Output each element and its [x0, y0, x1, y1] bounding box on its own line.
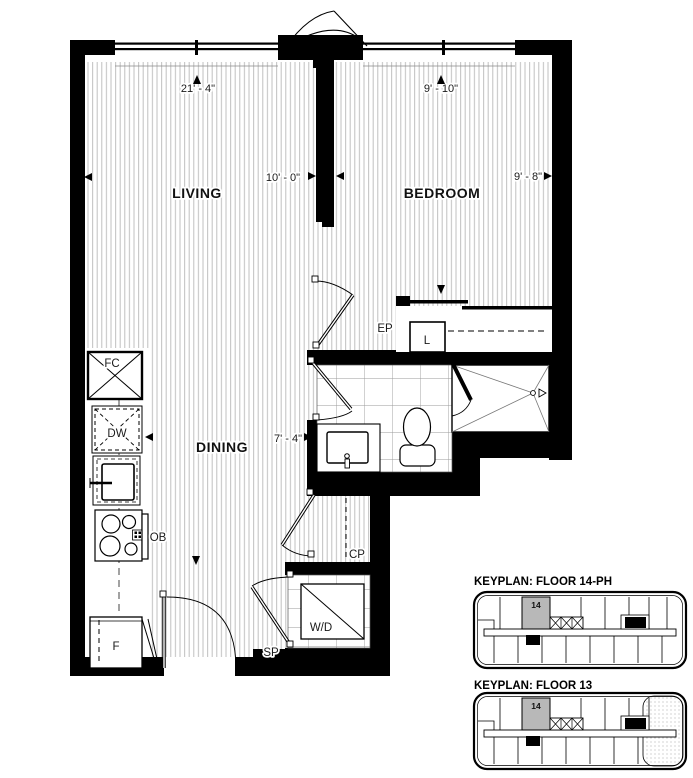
keyplan-13-title: KEYPLAN: FLOOR 13	[474, 680, 592, 692]
stair-block-left	[526, 736, 540, 746]
wall-divider	[316, 55, 334, 222]
wall-shower-right	[549, 350, 572, 460]
shower-pan	[452, 365, 549, 432]
wall-connector	[448, 458, 480, 496]
dining-label: DINING	[196, 439, 248, 455]
toilet-bowl	[404, 408, 431, 446]
cooktop	[95, 510, 148, 561]
stair-block-right	[625, 718, 646, 729]
dim-bedroom-width: 9' - 8"	[514, 171, 542, 183]
wall-right	[552, 40, 572, 352]
shower	[452, 362, 549, 432]
fridge-cabinet-label: FC	[104, 358, 119, 370]
keyplan-floor-13: 14	[474, 693, 686, 769]
unit-14-number: 14	[531, 701, 541, 711]
window-opening	[363, 40, 442, 55]
elevator-core	[550, 617, 583, 629]
dim-bedroom-depth: 9' - 10"	[424, 83, 458, 95]
vanity-faucet-stem	[345, 459, 350, 468]
living-label: LIVING	[172, 185, 222, 201]
oven-label: OB	[150, 532, 167, 544]
vanity-faucet	[345, 454, 350, 459]
wall-bottom-mid	[235, 657, 310, 676]
dim-hall-width: 7' - 4"	[274, 433, 302, 445]
cp-label: CP	[349, 549, 365, 561]
toilet-tank	[400, 445, 435, 466]
stair-block-right	[625, 617, 646, 628]
linen-label: L	[424, 335, 431, 347]
window-opening	[445, 40, 515, 55]
oven-handle	[142, 514, 148, 559]
ep-label: EP	[377, 323, 393, 335]
window-opening	[115, 40, 195, 55]
shower-drain	[531, 391, 536, 396]
keyplan-14-title: KEYPLAN: FLOOR 14-PH	[474, 576, 612, 588]
wall-left	[70, 40, 85, 675]
stair-block-left	[526, 635, 540, 645]
washer-dryer-label: W/D	[310, 622, 332, 634]
wall-cp-wd-divider	[285, 562, 390, 575]
dim-living-length: 21' - 4"	[181, 83, 215, 95]
keyplan-floor-14: 14	[474, 592, 686, 668]
bedroom-label: BEDROOM	[404, 185, 481, 201]
fridge-label: F	[112, 641, 119, 653]
elevator-core	[550, 718, 583, 730]
dishwasher-label: DW	[107, 428, 126, 440]
floorplan-canvas: 21' - 4" 9' - 10" 10' - 0" 9' - 8" 7' - …	[0, 0, 693, 778]
wall-divider-step	[322, 222, 334, 227]
window-opening	[198, 40, 278, 55]
kitchen-sink	[90, 456, 140, 505]
corridor	[484, 730, 676, 737]
unit-14-number: 14	[531, 600, 541, 610]
sliding-track-2	[462, 306, 552, 310]
bedroom-closet	[396, 300, 552, 352]
dim-living-width: 10' - 0"	[266, 172, 300, 184]
sliding-track-1	[398, 300, 468, 304]
sp-label: SP	[263, 647, 279, 659]
corridor	[484, 629, 676, 636]
